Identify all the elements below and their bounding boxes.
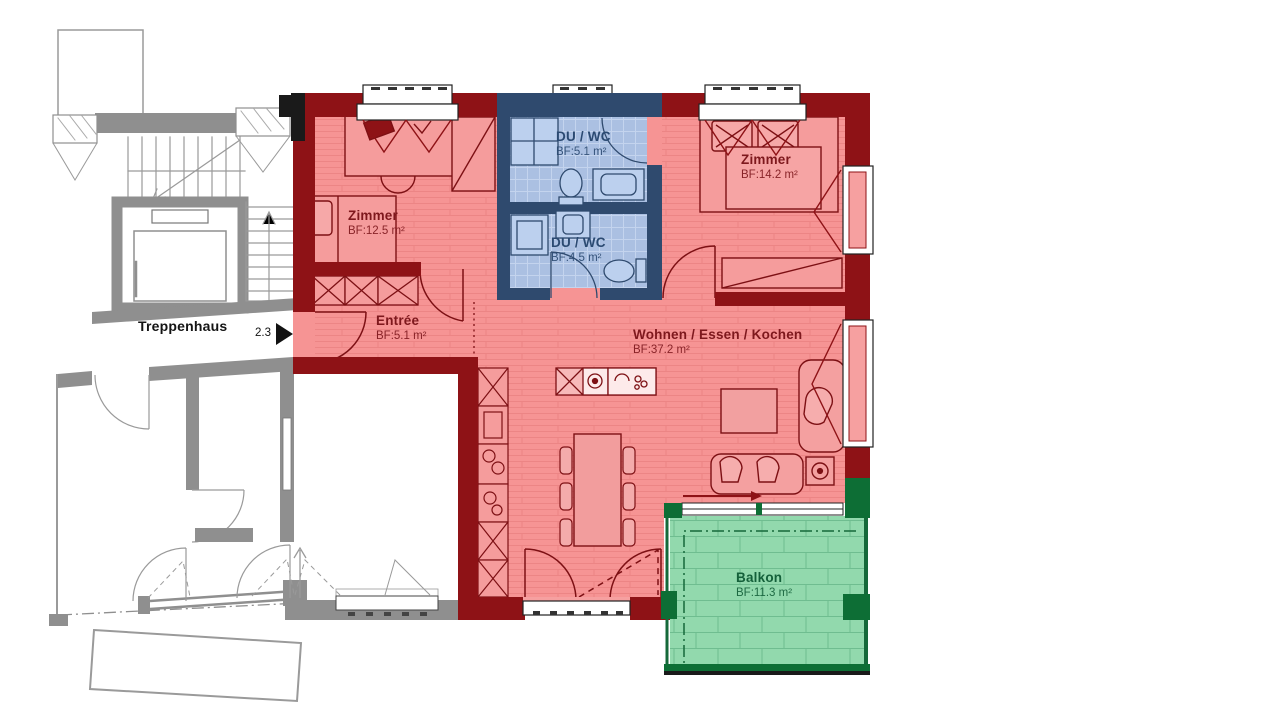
room-area: BF:14.2 m² — [741, 169, 798, 182]
stairs-lower — [246, 202, 296, 305]
room-area: BF:4.5 m² — [551, 252, 606, 265]
room-name: DU / WC — [556, 129, 611, 145]
kitchen-cabinets — [478, 368, 508, 597]
room-label-duwc-bottom: DU / WC BF:4.5 m² — [551, 235, 606, 265]
room-label-zimmer-left: Zimmer BF:12.5 m² — [348, 208, 405, 238]
room-label-entree: Entrée BF:5.1 m² — [376, 313, 426, 343]
room-area: BF:11.3 m² — [736, 587, 792, 600]
kitchen-counter — [556, 368, 656, 395]
stairwell-label: Treppenhaus — [138, 318, 227, 334]
room-area: BF:37.2 m² — [633, 344, 802, 357]
dining-set — [560, 434, 635, 546]
room-name: Zimmer — [348, 208, 405, 224]
wet-rooms — [497, 93, 662, 300]
room-label-zimmer-right: Zimmer BF:14.2 m² — [741, 152, 798, 182]
room-area: BF:5.1 m² — [376, 330, 426, 343]
floorplan-canvas — [0, 0, 1280, 720]
stairs-upper — [128, 137, 245, 205]
room-name: Zimmer — [741, 152, 798, 168]
stairwell-name: Treppenhaus — [138, 318, 227, 334]
room-label-balkon: Balkon BF:11.3 m² — [736, 570, 792, 600]
room-name: Entrée — [376, 313, 426, 329]
unit-number: 2.3 — [255, 327, 271, 339]
room-name: DU / WC — [551, 235, 606, 251]
balcony-door-sill — [523, 597, 630, 615]
elevator — [117, 202, 243, 308]
room-area: BF:5.1 m² — [556, 146, 611, 159]
room-name: Wohnen / Essen / Kochen — [633, 327, 802, 343]
floorplan-page: Treppenhaus 2.3 Zimmer BF:12.5 m² DU / W… — [0, 0, 1280, 720]
room-area: BF:12.5 m² — [348, 225, 405, 238]
stairwell-structure — [53, 30, 298, 324]
room-name: Balkon — [736, 570, 792, 586]
wall-junction-block — [291, 93, 305, 141]
wardrobe-zimmer-left — [312, 276, 418, 305]
unit-arrow-icon — [276, 323, 293, 345]
room-label-wohnen: Wohnen / Essen / Kochen BF:37.2 m² — [633, 327, 802, 357]
neighbor-apartment — [49, 357, 460, 701]
room-label-duwc-top: DU / WC BF:5.1 m² — [556, 129, 611, 159]
